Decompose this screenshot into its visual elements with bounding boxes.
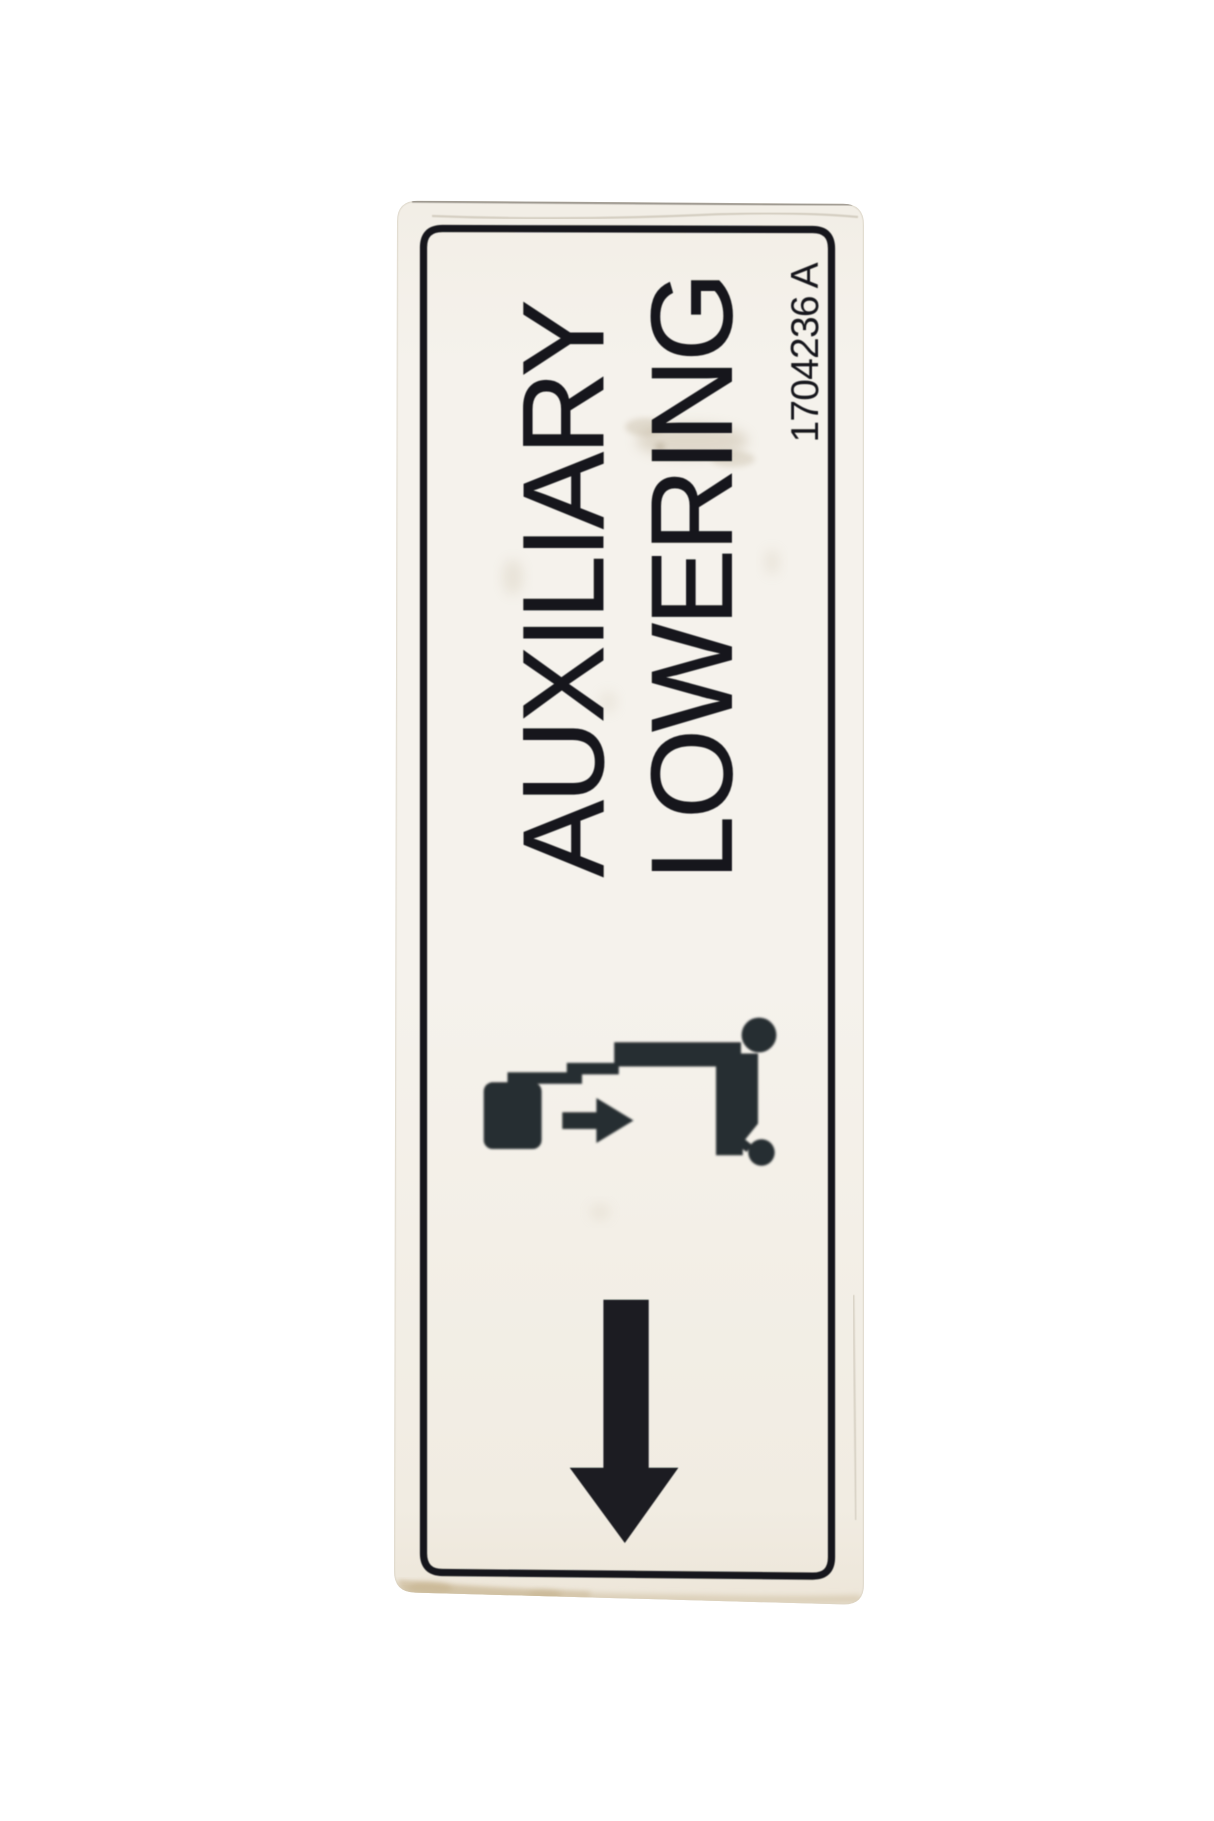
svg-text:AUXILIARY: AUXILIARY (500, 302, 628, 877)
svg-text:1704236 A: 1704236 A (784, 262, 827, 442)
svg-text:LOWERING: LOWERING (629, 275, 757, 880)
